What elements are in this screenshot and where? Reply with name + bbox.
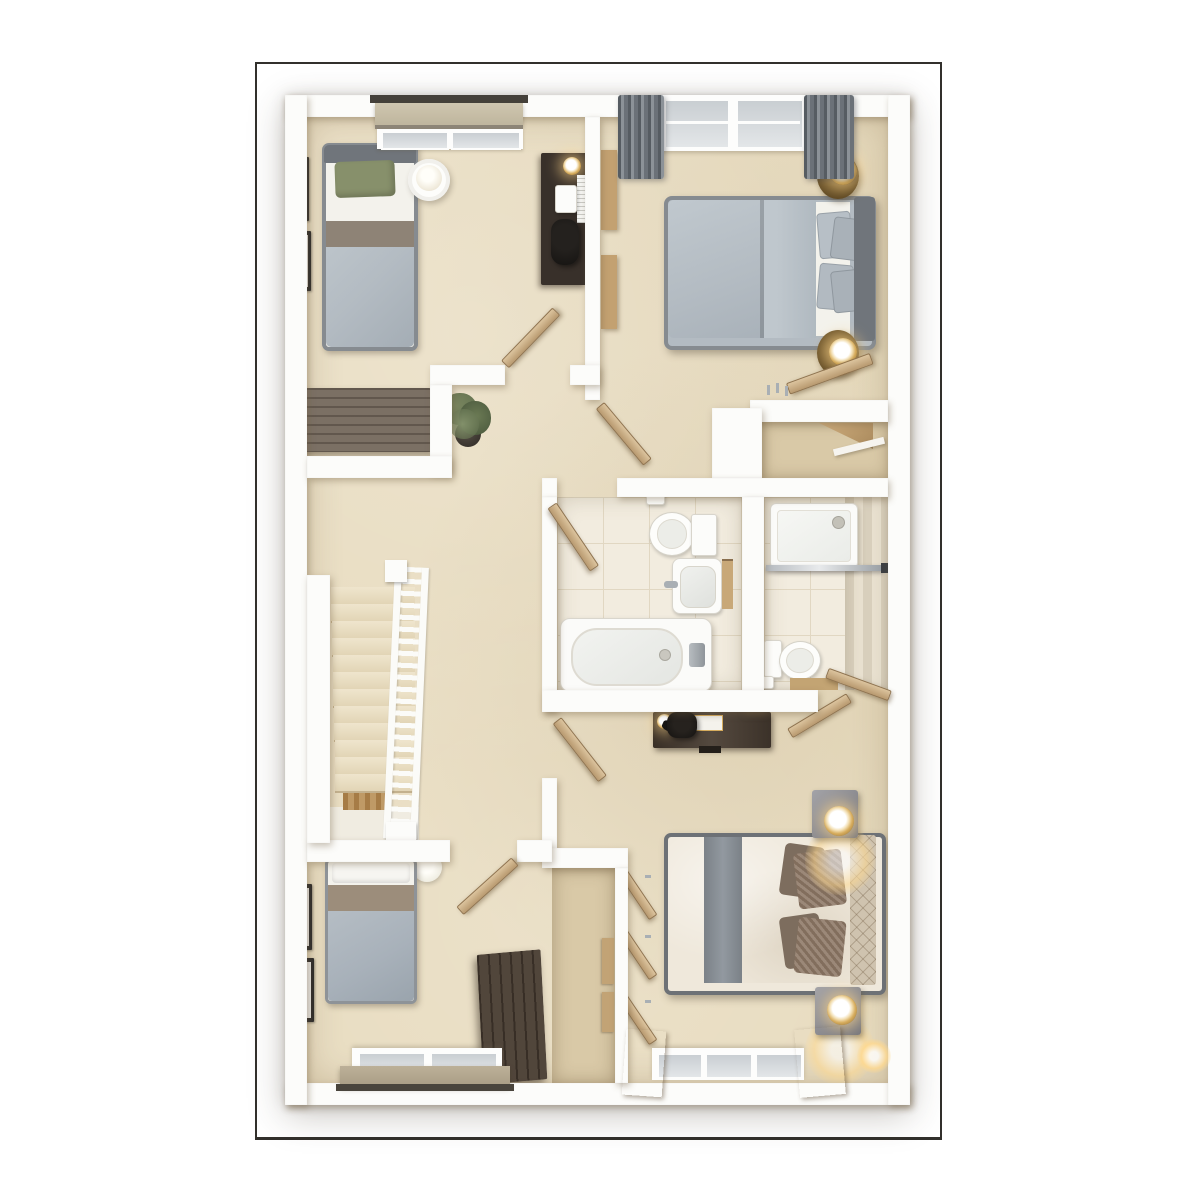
round-side-table (408, 159, 450, 201)
wall-stairwell (307, 575, 330, 843)
desk-bottom-right-room (653, 712, 771, 748)
bed-taupe-band (328, 885, 414, 911)
single-bed-bottom-left (325, 858, 417, 1004)
wall-cupboard-north (542, 848, 628, 868)
desk-drawer (699, 746, 721, 753)
window-pane (451, 131, 521, 150)
wardrobe-handle (645, 875, 651, 878)
wall-bath-north-b (617, 478, 888, 497)
curtain-gray (618, 95, 664, 179)
window-frame (377, 129, 523, 149)
window-pane (664, 99, 730, 149)
shower-drain (832, 516, 845, 529)
wall-bed3-south-a (430, 365, 505, 385)
bathtub-drain (659, 649, 671, 661)
slatted-curtain (794, 1026, 846, 1098)
clothes-rail-hooks (767, 383, 793, 397)
bed-duvet (328, 911, 414, 1001)
hook (767, 385, 770, 395)
bed-pillow-green (334, 160, 395, 198)
wall-outer-left (285, 95, 307, 1105)
glass-screen-cap (881, 563, 888, 573)
wall-light-glow (857, 1039, 891, 1073)
banister-newel-top (385, 560, 407, 582)
basin-bowl (680, 566, 716, 608)
bed-headboard (854, 197, 875, 341)
shower-tray (770, 503, 858, 569)
bedside-table-square (812, 790, 858, 838)
window-blind-bar (336, 1084, 514, 1091)
wall-nook-cabinet (712, 408, 762, 478)
wall-outer-right (888, 95, 910, 1105)
hook (785, 386, 788, 396)
cupboard-shelf (602, 992, 614, 1032)
bed-pillow-brown (793, 917, 847, 978)
bathtub (560, 618, 712, 692)
wardrobe-handle (645, 935, 651, 938)
curtain-gray (804, 95, 854, 179)
window-roller-blind (340, 1066, 510, 1086)
table-lamp (416, 165, 442, 191)
wardrobe-handle (645, 1000, 651, 1003)
banister-newel-bottom (386, 822, 416, 842)
shower-glass-screen (766, 565, 884, 571)
washbasin (672, 558, 722, 614)
bed-sheet (328, 199, 412, 221)
bed-duvet (326, 247, 414, 347)
master-wardrobe-strip (601, 150, 617, 230)
building-footprint (285, 95, 910, 1105)
desk-chair (551, 219, 579, 265)
toilet (649, 512, 695, 556)
wall-bed3-south-c (307, 456, 452, 478)
desk-top-left-room (541, 153, 587, 285)
desk-chair (667, 712, 697, 738)
master-wardrobe-strip (601, 255, 617, 329)
bed-taupe-band (326, 221, 414, 247)
window-roller-blind (375, 103, 523, 127)
cupboard-shelf (602, 938, 614, 984)
plant-foliage (449, 409, 479, 439)
slatted-curtain (622, 1029, 667, 1098)
wall-bed3-master (585, 117, 600, 400)
wall-bed4-north-a (307, 840, 450, 862)
toilet-cistern (691, 514, 717, 556)
sideboard (291, 388, 431, 452)
desk-lamp (563, 157, 581, 175)
wall-bed3-south-b (570, 365, 600, 385)
bedside-lamp (824, 806, 854, 836)
wall-bath-ensuite-divider (742, 497, 764, 712)
plan-frame (255, 62, 942, 1140)
floor-plan-screenshot (0, 0, 1200, 1200)
wall-bed4-north-b (517, 840, 552, 862)
window-frame (658, 95, 806, 151)
towel-ladder (722, 559, 733, 609)
hook (776, 383, 779, 393)
single-bed-top-left (322, 143, 418, 351)
window-pelmet (370, 95, 528, 103)
bedside-lamp (827, 995, 857, 1025)
bed-pillow-white (332, 863, 410, 883)
bed-gray-runner (704, 837, 742, 983)
bed-duvet-fold (760, 200, 816, 338)
wall-bath-south (542, 690, 818, 712)
wall-master-south (750, 400, 888, 422)
desk-tray (555, 185, 577, 213)
window-pane (736, 99, 804, 149)
master-double-bed (664, 196, 876, 350)
wall-bath-north-a (542, 478, 557, 497)
wall-bath-west (542, 497, 557, 712)
bath-taps (689, 643, 705, 667)
basin-tap (664, 581, 678, 588)
window-mullion (664, 121, 800, 124)
window-pane (705, 1053, 753, 1079)
window-pane (381, 131, 449, 150)
window-frame (652, 1048, 804, 1080)
